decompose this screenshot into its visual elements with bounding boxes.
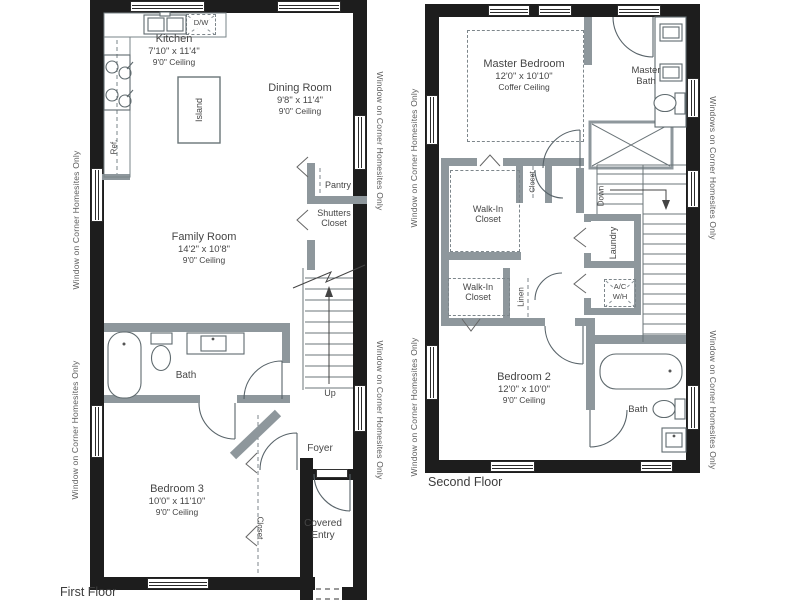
sf-bath-wall-top xyxy=(595,335,686,344)
sf-wic-door-opening xyxy=(477,158,503,166)
ff-foyer-label: Foyer xyxy=(295,443,345,455)
sf-masterbath-door xyxy=(613,17,653,57)
annotation-ff-right-bottom: Window on Corner Homesites Only xyxy=(375,341,385,480)
window-symbol xyxy=(617,5,661,16)
window-symbol xyxy=(488,5,530,16)
window-symbol xyxy=(130,1,205,12)
floor-plan-canvas: Kitchen 7'10" x 11'4" 9'0" Ceiling Dinin… xyxy=(0,0,800,600)
ff-counter-cap xyxy=(102,174,130,180)
window-symbol xyxy=(640,461,673,472)
sf-wall-left xyxy=(425,4,439,473)
window-symbol xyxy=(687,170,699,208)
ff-bath-fixtures xyxy=(108,332,244,398)
sf-master-closet-wall xyxy=(443,158,584,166)
sf-closet-label: Closet xyxy=(528,171,537,192)
window-symbol xyxy=(426,95,438,145)
sf-master-toilet-bowl xyxy=(654,95,676,112)
ff-toilet-tank xyxy=(151,333,172,344)
ff-entry-opening xyxy=(316,589,342,599)
sf-bath-label: Bath xyxy=(618,405,658,416)
annotation-sf-left-top: Window on Corner Homesites Only xyxy=(409,89,419,228)
window-symbol xyxy=(354,115,366,170)
sf-wic-wall-mid xyxy=(441,252,521,260)
annotation-sf-right-top: Windows on Corner Homesites Only xyxy=(708,96,718,239)
window-symbol xyxy=(687,78,699,118)
sf-bed2-door xyxy=(545,326,583,364)
ff-bed3-label: Bedroom 3 10'0" x 11'10" 9'0" Ceiling xyxy=(117,483,237,517)
ff-stairs xyxy=(303,268,353,390)
sf-masterbath-wall xyxy=(584,17,592,65)
window-symbol xyxy=(687,385,699,430)
window-symbol xyxy=(426,345,438,400)
ff-stairs-up-arrow xyxy=(325,286,333,384)
ff-pantry-label: Pantry xyxy=(314,180,362,190)
ff-bath-label: Bath xyxy=(166,370,206,382)
ff-wall-left xyxy=(90,0,104,590)
sf-bath-wall-left xyxy=(586,318,595,410)
front-door-panel xyxy=(316,469,348,478)
ff-closet-label: Closet xyxy=(256,517,265,540)
ff-kitchen-label: Kitchen 7'10" x 11'4" 9'0" Ceiling xyxy=(114,33,234,67)
sf-ac-wh-label: A/C W/H xyxy=(606,282,634,302)
ff-ref-label: Ref. xyxy=(110,140,119,155)
ff-wall-right xyxy=(353,0,367,600)
ff-sink xyxy=(201,336,226,351)
sf-laundry-stub-a xyxy=(584,214,591,222)
sf-laundry-wall-top xyxy=(584,214,641,221)
sf-bath-fixtures xyxy=(600,354,686,452)
annotation-ff-left-bottom: Window on Corner Homesites Only xyxy=(70,361,80,500)
ff-dining-label: Dining Room 9'8" x 11'4" 9'0" Ceiling xyxy=(245,82,355,116)
ff-bath-door xyxy=(244,361,282,399)
ff-bath-wall-right xyxy=(282,323,290,363)
ff-stair-newel xyxy=(307,240,315,270)
ff-vanity xyxy=(187,333,244,354)
window-symbol xyxy=(277,1,341,12)
sf-down-label: Down xyxy=(597,186,606,206)
sf-linen-label: Linen xyxy=(517,287,526,307)
ff-shutters-closet-label: Shutters Closet xyxy=(308,208,360,229)
ff-bed3-door xyxy=(199,403,235,439)
ff-foyer-door xyxy=(260,433,297,470)
annotation-ff-left-top: Window on Corner Homesites Only xyxy=(71,151,81,290)
ff-island-label: Island xyxy=(194,98,204,122)
sf-sink-1 xyxy=(660,24,682,41)
window-symbol xyxy=(354,385,366,432)
sf-bath-sink xyxy=(666,433,682,447)
ff-family-label: Family Room 14'2" x 10'8" 9'0" Ceiling xyxy=(144,231,264,265)
sf-master-toilet-tank xyxy=(675,93,685,114)
ff-dw-label: D/W xyxy=(189,19,213,28)
sf-laundry-stub-b xyxy=(584,253,591,265)
ff-toilet-bowl xyxy=(152,346,171,371)
sf-toilet-tank xyxy=(675,399,685,419)
sf-linen-door xyxy=(535,273,562,300)
sf-master-label: Master Bedroom 12'0" x 10'10" Coffer Cei… xyxy=(464,58,584,92)
ff-bath-wall-bottom-right xyxy=(237,395,290,403)
ff-pantry-wall-bottom xyxy=(307,196,367,204)
sf-master-bath-label: Master Bath xyxy=(622,66,670,88)
ff-bath-wall-bottom-left xyxy=(104,395,200,403)
sf-stairs-down-arrow xyxy=(610,190,670,210)
annotation-sf-left-bottom: Window on Corner Homesites Only xyxy=(409,338,419,477)
sf-laundry-wall-mid xyxy=(584,261,641,268)
ff-caption: First Floor xyxy=(60,585,116,599)
sf-wic-upper-label: Walk-In Closet xyxy=(462,204,514,225)
ff-up-label: Up xyxy=(318,388,342,398)
window-symbol xyxy=(147,578,209,589)
sf-hall-wall xyxy=(576,168,584,213)
ff-tub xyxy=(108,332,141,398)
ff-foyer-diagonal-wall xyxy=(233,413,278,456)
sf-wic-lower-label: Walk-In Closet xyxy=(452,282,504,303)
ff-bath-wall-top xyxy=(104,323,290,332)
ff-covered-entry-label: Covered Entry xyxy=(294,518,352,541)
annotation-sf-right-bottom: Window on Corner Homesites Only xyxy=(708,331,718,470)
annotation-ff-right-top: Window on Corner Homesites Only xyxy=(375,72,385,211)
sf-bed2-label: Bedroom 2 12'0" x 10'0" 9'0" Ceiling xyxy=(464,371,584,405)
ff-shutters-opening-chevron xyxy=(297,210,308,230)
ff-wall-entry-bottom xyxy=(342,587,367,600)
sf-caption: Second Floor xyxy=(428,475,502,489)
sf-closet-wall-b xyxy=(545,161,552,203)
sf-bath-vanity xyxy=(662,428,686,452)
sf-laundry-wall-bottom xyxy=(584,308,641,315)
sf-shower xyxy=(590,122,672,168)
window-symbol xyxy=(91,405,103,458)
window-symbol xyxy=(538,5,572,16)
window-symbol xyxy=(490,461,535,472)
sf-bed2-wall-top xyxy=(441,318,545,326)
sf-laundry-label: Laundry xyxy=(608,227,618,260)
ff-kitchen-sink xyxy=(144,12,186,34)
sf-tub xyxy=(600,354,682,389)
sf-laundry-stub-c xyxy=(584,298,591,312)
